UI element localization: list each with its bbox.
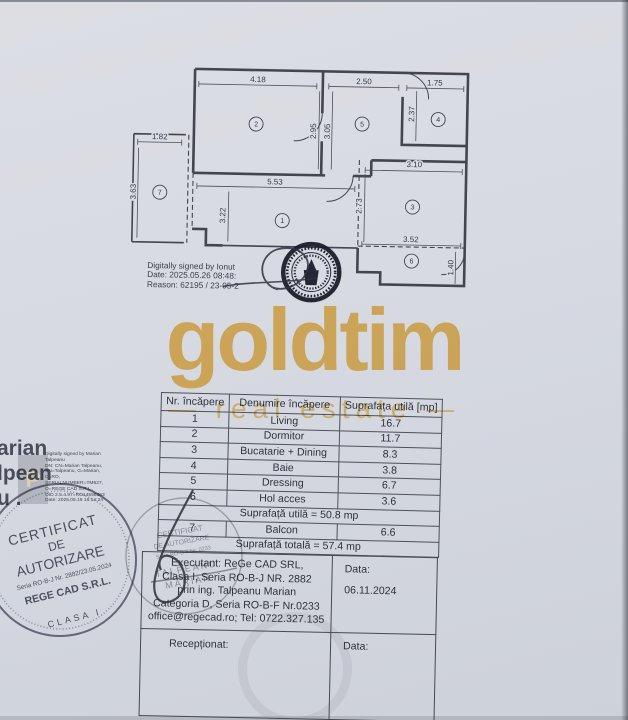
area-column-header: Nr. încăpere: [161, 393, 229, 413]
room-number: 4: [436, 117, 440, 124]
dimension-label: 1.82: [152, 132, 168, 141]
data-cell-2: Data:: [329, 632, 436, 720]
dimension-label: 3.52: [403, 235, 419, 244]
page: 4.182.501.752.953.052.373.102.735.533.22…: [0, 0, 628, 720]
dimension-label: 3.05: [323, 123, 332, 139]
room-number: 6: [409, 258, 413, 265]
room-nr-cell: 2: [160, 426, 228, 443]
pen-signature: [133, 478, 243, 628]
receptionat-label: Recepționat:: [169, 638, 229, 651]
dimension-label: 3.22: [218, 207, 227, 223]
data-label: Data:: [345, 563, 437, 577]
data-value: 06.11.2024: [344, 584, 436, 598]
dimension-label: 2.95: [309, 123, 318, 139]
photo-edge-top: [0, 0, 628, 2]
data-cell: Data: 06.11.2024: [331, 555, 438, 634]
dimension-label: 5.53: [267, 177, 283, 186]
data-label-2: Data:: [343, 640, 435, 654]
dimension-label: 3.10: [406, 160, 422, 169]
receptionat-cell: Recepționat:: [139, 628, 331, 719]
stamp-clasa: CLASA I: [47, 607, 103, 630]
room-number: 3: [410, 204, 414, 211]
dimension-label: 2.73: [354, 198, 363, 214]
dimension-label: 2.37: [407, 106, 416, 122]
handwritten-signature: [218, 236, 339, 300]
dimension-label: 4.18: [250, 75, 266, 84]
dimension-label: 1.75: [427, 78, 443, 87]
room-nr-cell: 3: [160, 442, 228, 459]
room-number: 2: [254, 121, 258, 128]
dimension-label: 1.40: [446, 259, 455, 275]
photo-edge-right: [621, 0, 628, 720]
room-number: 7: [158, 190, 162, 197]
room-number: 1: [280, 218, 284, 225]
floor-plan: 4.182.501.752.953.052.373.102.735.533.22…: [123, 52, 488, 311]
dimension-label: 2.50: [356, 77, 372, 86]
room-number: 5: [360, 121, 364, 128]
photo-edge-bottom: [0, 716, 628, 720]
room-nr-cell: 4: [160, 457, 228, 474]
room-nr-cell: 1: [161, 411, 229, 428]
dimension-label: 3.63: [129, 183, 138, 199]
